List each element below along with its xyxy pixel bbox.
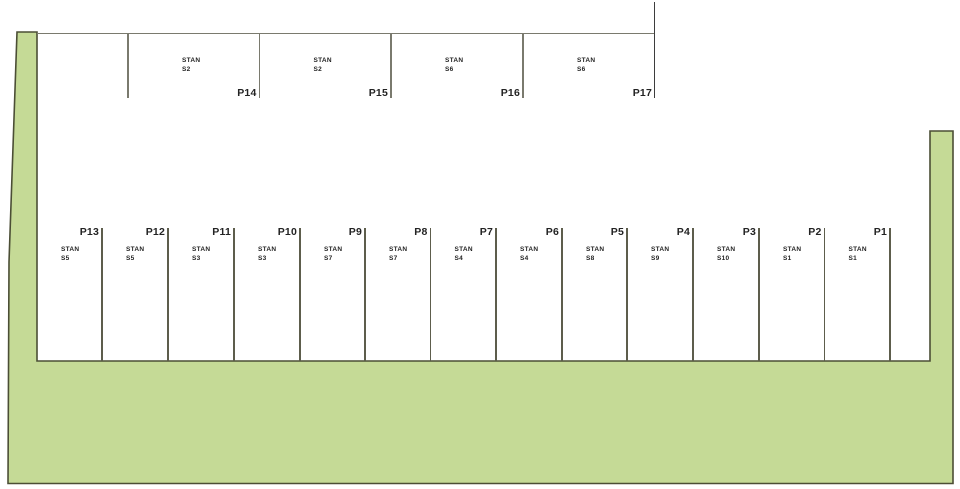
stan-unit-label-p12: STAN S5 [126,245,144,263]
stan-unit-label-p13: STAN S5 [61,245,79,263]
plot-number-label-p12: P12 [146,226,165,239]
stan-unit-label-p17: STAN S6 [577,56,595,74]
plot-number-label-p5: P5 [611,226,624,239]
stan-word: STAN [389,246,407,253]
stan-word: STAN [314,57,332,64]
stan-unit-label-p8: STAN S7 [389,245,407,263]
stan-word: STAN [126,246,144,253]
plot-number-label-p10: P10 [278,226,297,239]
stan-unit-label-p3: STAN S10 [717,245,735,263]
plot-number-label-p15: P15 [369,87,388,100]
stan-word: STAN [182,57,200,64]
stan-unit-label-p2: STAN S1 [783,245,801,263]
plot-number-label-p4: P4 [677,226,690,239]
plot-divider [259,33,260,98]
plot-number-label-p8: P8 [414,226,427,239]
plot-divider [390,33,391,98]
plot-number-label-p16: P16 [501,87,520,100]
stan-word: STAN [258,246,276,253]
stan-unit-label-p16: STAN S6 [445,56,463,74]
stan-unit-number: S2 [182,66,191,73]
stan-unit-number: S4 [520,255,529,262]
plot-number-label-p11: P11 [212,226,231,239]
plot-number-label-p14: P14 [237,87,256,100]
stan-unit-number: S7 [389,255,398,262]
plot-number-label-p7: P7 [480,226,493,239]
stan-unit-label-p7: STAN S4 [455,245,473,263]
stan-unit-number: S10 [717,255,729,262]
stan-word: STAN [849,246,867,253]
stan-unit-number: S9 [651,255,660,262]
stan-word: STAN [717,246,735,253]
stan-word: STAN [577,57,595,64]
stan-unit-number: S7 [324,255,333,262]
stan-unit-label-p4: STAN S9 [651,245,669,263]
stan-word: STAN [192,246,210,253]
plot-number-label-p3: P3 [743,226,756,239]
stan-word: STAN [61,246,79,253]
stan-word: STAN [651,246,669,253]
stan-unit-number: S3 [192,255,201,262]
plot-number-label-p13: P13 [80,226,99,239]
plot-divider [127,33,128,98]
stan-unit-label-p1: STAN S1 [849,245,867,263]
stan-unit-number: S8 [586,255,595,262]
stan-unit-number: S6 [445,66,454,73]
stan-unit-label-p5: STAN S8 [586,245,604,263]
plot-number-label-p1: P1 [874,226,887,239]
stan-unit-number: S5 [61,255,70,262]
stan-word: STAN [324,246,342,253]
plot-divider [889,228,890,361]
stan-word: STAN [520,246,538,253]
stan-unit-label-p6: STAN S4 [520,245,538,263]
stan-unit-number: S1 [783,255,792,262]
stan-word: STAN [455,246,473,253]
stan-unit-number: S3 [258,255,267,262]
stan-unit-number: S4 [455,255,464,262]
stan-unit-number: S5 [126,255,135,262]
plot-number-label-p2: P2 [808,226,821,239]
stan-word: STAN [783,246,801,253]
stan-word: STAN [586,246,604,253]
stan-unit-label-p15: STAN S2 [314,56,332,74]
stan-unit-label-p10: STAN S3 [258,245,276,263]
stan-unit-number: S1 [849,255,858,262]
plot-number-label-p17: P17 [633,87,652,100]
stan-unit-label-p9: STAN S7 [324,245,342,263]
stan-unit-number: S6 [577,66,586,73]
plot-number-label-p9: P9 [349,226,362,239]
stan-unit-label-p14: STAN S2 [182,56,200,74]
stan-unit-label-p11: STAN S3 [192,245,210,263]
stan-word: STAN [445,57,463,64]
stan-unit-number: S2 [314,66,323,73]
plot-number-label-p6: P6 [546,226,559,239]
plot-divider [522,33,523,98]
site-plan-canvas: STAN S2P14STAN S2P15STAN S6P16STAN S6P17… [0,0,960,489]
